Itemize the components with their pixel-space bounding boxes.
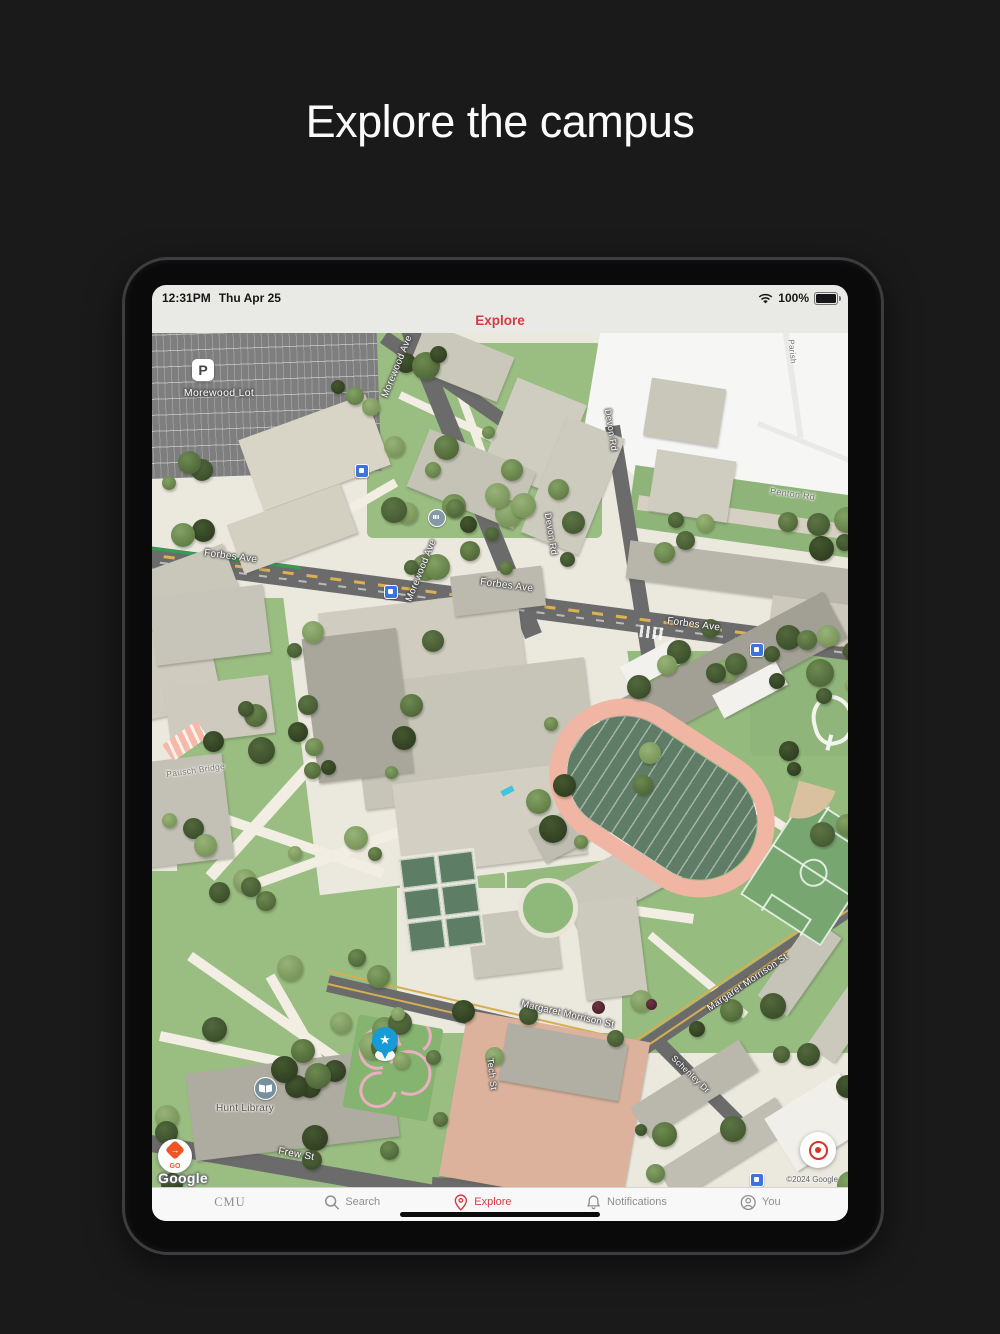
library-icon[interactable] xyxy=(254,1077,277,1100)
tree xyxy=(499,561,513,575)
tree xyxy=(633,775,653,795)
go-arrow-icon: → xyxy=(165,1140,185,1160)
tree xyxy=(460,516,477,533)
tree xyxy=(288,722,308,742)
battery-icon xyxy=(814,292,838,305)
tree xyxy=(291,1039,315,1063)
tree xyxy=(171,523,195,547)
wifi-icon xyxy=(758,293,773,304)
tree xyxy=(817,625,839,647)
tree xyxy=(797,630,817,650)
tree xyxy=(482,426,495,439)
tree xyxy=(769,673,785,689)
tree xyxy=(384,436,405,457)
building xyxy=(643,377,726,446)
tree xyxy=(362,398,380,416)
tree xyxy=(271,1056,298,1083)
tree xyxy=(539,815,567,843)
tree xyxy=(404,560,419,575)
tree xyxy=(562,511,585,534)
status-time: 12:31PM xyxy=(162,291,211,305)
tree xyxy=(385,766,398,779)
tree xyxy=(809,536,834,561)
tree xyxy=(706,663,726,683)
tree xyxy=(433,1112,448,1127)
status-date: Thu Apr 25 xyxy=(219,291,281,305)
tree xyxy=(202,1017,227,1042)
tree xyxy=(288,846,302,860)
tree xyxy=(238,701,254,717)
tree xyxy=(426,1050,441,1065)
bus-stop-icon[interactable] xyxy=(384,585,398,599)
tree xyxy=(676,531,695,550)
google-go-button[interactable]: → GO xyxy=(158,1139,192,1173)
tree xyxy=(248,737,275,764)
tennis-courts xyxy=(396,848,485,955)
tree xyxy=(485,527,499,541)
tree xyxy=(331,380,345,394)
tree xyxy=(424,554,450,580)
tree xyxy=(302,1125,328,1151)
tree xyxy=(452,1000,475,1023)
saved-pin-icon[interactable]: ★ xyxy=(372,1027,398,1067)
tree xyxy=(192,519,215,542)
tree xyxy=(330,1012,352,1034)
tree xyxy=(806,659,834,687)
building xyxy=(152,584,271,666)
tree xyxy=(696,514,714,532)
tree xyxy=(460,541,480,561)
tree xyxy=(346,387,364,405)
tree xyxy=(526,789,551,814)
tree xyxy=(635,1124,647,1136)
tree xyxy=(302,1150,322,1170)
tree xyxy=(422,630,444,652)
tree xyxy=(548,479,569,500)
building xyxy=(152,753,234,868)
status-bar: 12:31PM Thu Apr 25 100% xyxy=(152,285,848,311)
tree xyxy=(668,512,684,528)
tree xyxy=(391,1007,405,1021)
tree xyxy=(553,774,576,797)
tree xyxy=(787,762,801,776)
tree xyxy=(162,813,177,828)
tree xyxy=(652,1122,677,1147)
bus-stop-icon[interactable] xyxy=(355,464,369,478)
tree xyxy=(446,499,464,517)
cmu-wordmark: CMU xyxy=(214,1195,245,1210)
building xyxy=(302,628,414,783)
tree xyxy=(773,1046,790,1063)
map-canvas[interactable]: P ★ Morewood Lot Forbes Ave Forbes Ave F… xyxy=(152,333,848,1188)
tree xyxy=(646,1164,665,1183)
tree xyxy=(381,497,407,523)
tree xyxy=(627,675,651,699)
tree xyxy=(305,1063,331,1089)
page-background: Explore the campus 12:31PM Thu Apr 25 10… xyxy=(0,0,1000,1334)
google-logo: Google xyxy=(158,1170,208,1186)
tab-label: Notifications xyxy=(607,1196,667,1208)
tree xyxy=(304,762,321,779)
tree xyxy=(519,1006,538,1025)
tree xyxy=(646,999,657,1010)
tree xyxy=(287,643,302,658)
tree xyxy=(178,451,201,474)
bell-icon xyxy=(585,1194,602,1211)
building xyxy=(574,896,647,1001)
tree xyxy=(701,619,720,638)
ipad-device-frame: 12:31PM Thu Apr 25 100% Explore xyxy=(122,257,884,1255)
tree xyxy=(348,949,366,967)
tree xyxy=(574,835,588,849)
tree xyxy=(837,1171,848,1188)
battery-percent: 100% xyxy=(778,291,809,305)
tree xyxy=(392,726,416,750)
parking-icon[interactable]: P xyxy=(192,359,214,381)
tree xyxy=(400,694,423,717)
tree xyxy=(639,742,661,764)
tree xyxy=(810,822,835,847)
tree xyxy=(203,731,224,752)
tree xyxy=(807,513,830,536)
nav-header: Explore xyxy=(152,309,848,333)
tree xyxy=(485,483,510,508)
go-label: GO xyxy=(158,1163,192,1170)
tree xyxy=(725,653,747,675)
tree xyxy=(836,534,848,551)
tree xyxy=(368,847,382,861)
poi-building-icon[interactable] xyxy=(428,509,446,527)
tree xyxy=(779,741,799,761)
person-icon xyxy=(740,1194,757,1211)
page-title: Explore the campus xyxy=(0,96,1000,148)
tree xyxy=(256,891,276,911)
tree xyxy=(816,688,832,704)
map-copyright: ©2024 Google xyxy=(786,1175,838,1184)
tree xyxy=(607,1030,624,1047)
nav-title: Explore xyxy=(475,313,525,328)
home-indicator[interactable] xyxy=(400,1212,600,1217)
tree xyxy=(797,1043,820,1066)
tree xyxy=(778,512,798,532)
tree xyxy=(720,1116,746,1142)
bus-stop-icon[interactable] xyxy=(750,1173,764,1187)
tree xyxy=(162,476,176,490)
ipad-screen: 12:31PM Thu Apr 25 100% Explore xyxy=(152,285,848,1221)
tab-you[interactable]: You xyxy=(740,1188,781,1216)
tree xyxy=(511,493,536,518)
tree xyxy=(434,435,459,460)
tab-search[interactable]: Search xyxy=(323,1188,380,1216)
tree xyxy=(380,1141,399,1160)
tree xyxy=(501,459,523,481)
tree xyxy=(560,552,575,567)
tree xyxy=(430,346,447,363)
circular-lawn xyxy=(518,878,578,938)
my-location-button[interactable] xyxy=(800,1132,836,1168)
tree xyxy=(277,955,303,981)
tree xyxy=(209,882,230,903)
tree xyxy=(760,993,786,1019)
tree xyxy=(544,717,558,731)
star-glyph: ★ xyxy=(379,1032,391,1048)
tab-label: Search xyxy=(345,1196,380,1208)
tree xyxy=(425,462,441,478)
search-icon xyxy=(323,1194,340,1211)
tree xyxy=(720,999,743,1022)
tree xyxy=(321,760,336,775)
tab-cmu[interactable]: CMU xyxy=(214,1188,245,1216)
tree xyxy=(654,542,675,563)
tab-label: Explore xyxy=(474,1196,511,1208)
map-pin-icon xyxy=(452,1194,469,1211)
tree xyxy=(305,738,323,756)
tree xyxy=(657,655,677,675)
tab-label: You xyxy=(762,1196,781,1208)
tree xyxy=(689,1021,705,1037)
building xyxy=(648,449,737,523)
tree xyxy=(298,695,318,715)
tree xyxy=(592,1001,605,1014)
tree xyxy=(485,1047,504,1066)
tree xyxy=(344,826,368,850)
bus-stop-icon[interactable] xyxy=(750,643,764,657)
tree xyxy=(241,877,261,897)
tree xyxy=(194,834,217,857)
tree xyxy=(764,646,780,662)
tree xyxy=(367,965,390,988)
tree xyxy=(302,621,324,643)
